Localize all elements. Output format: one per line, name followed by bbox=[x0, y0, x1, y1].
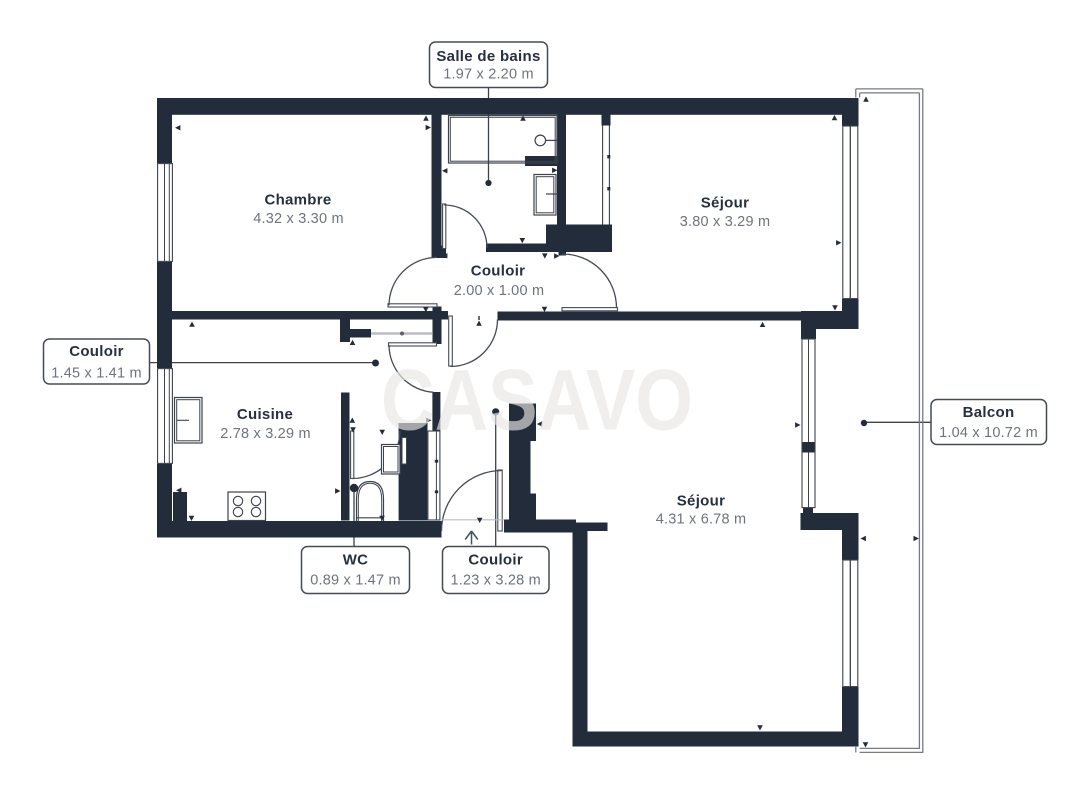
svg-text:CASAVO: CASAVO bbox=[381, 353, 693, 449]
svg-text:1.97 x 2.20 m: 1.97 x 2.20 m bbox=[443, 67, 533, 83]
svg-text:4.32 x 3.30 m: 4.32 x 3.30 m bbox=[253, 211, 343, 227]
svg-text:Couloir: Couloir bbox=[468, 552, 523, 569]
svg-text:Séjour: Séjour bbox=[677, 493, 725, 510]
svg-text:1.04 x 10.72 m: 1.04 x 10.72 m bbox=[939, 425, 1038, 441]
svg-text:2.00 x 1.00 m: 2.00 x 1.00 m bbox=[454, 283, 544, 299]
svg-text:WC: WC bbox=[343, 552, 369, 569]
svg-text:2.78 x 3.29 m: 2.78 x 3.29 m bbox=[220, 426, 310, 442]
svg-text:4.31 x 6.78 m: 4.31 x 6.78 m bbox=[656, 512, 746, 528]
svg-text:Couloir: Couloir bbox=[471, 263, 526, 280]
svg-text:Cuisine: Cuisine bbox=[237, 406, 293, 423]
svg-text:Couloir: Couloir bbox=[69, 343, 124, 360]
svg-text:Séjour: Séjour bbox=[701, 195, 749, 212]
svg-text:1.23 x 3.28 m: 1.23 x 3.28 m bbox=[450, 573, 540, 589]
svg-text:Salle de bains: Salle de bains bbox=[436, 48, 540, 65]
svg-text:1.45 x 1.41 m: 1.45 x 1.41 m bbox=[51, 366, 141, 382]
svg-text:3.80 x 3.29 m: 3.80 x 3.29 m bbox=[680, 214, 770, 230]
svg-text:Balcon: Balcon bbox=[963, 404, 1015, 421]
svg-text:0.89 x 1.47 m: 0.89 x 1.47 m bbox=[310, 573, 400, 589]
svg-text:Chambre: Chambre bbox=[264, 192, 331, 209]
